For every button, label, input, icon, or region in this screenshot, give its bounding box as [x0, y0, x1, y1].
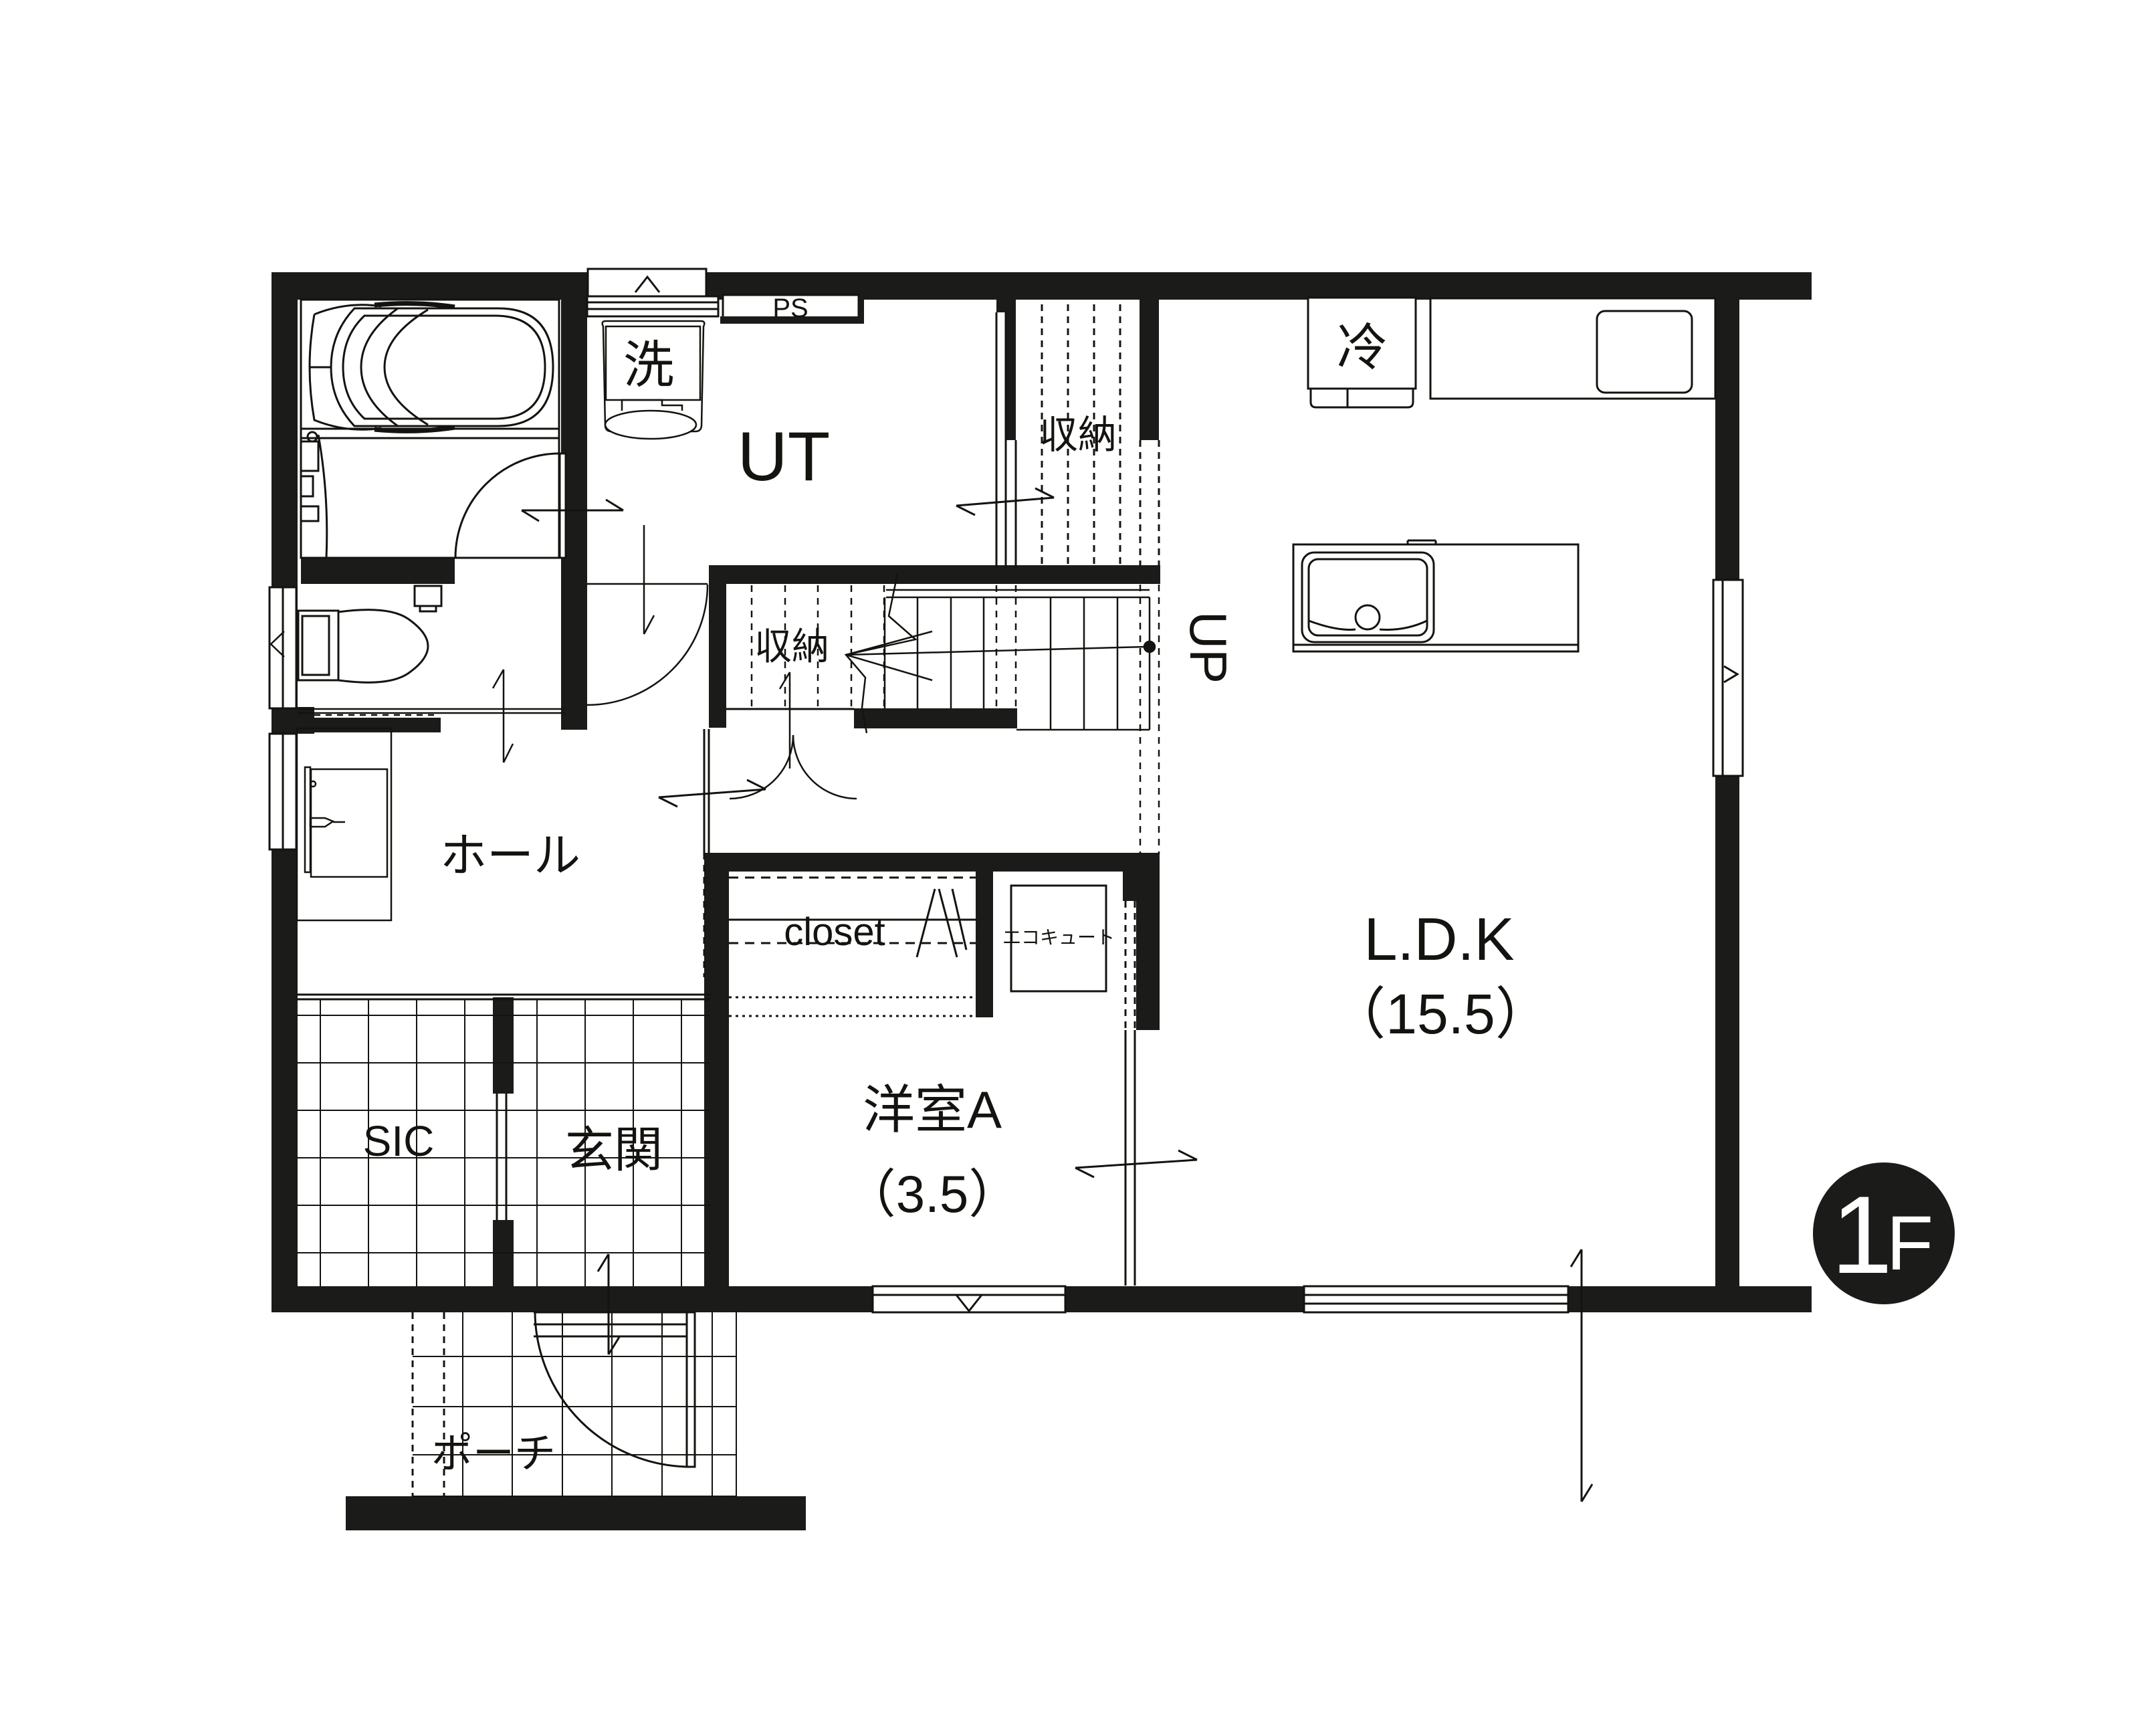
svg-text:エコキュート: エコキュート — [1002, 927, 1115, 948]
svg-text:収納: 収納 — [754, 625, 829, 668]
svg-text:1: 1 — [1831, 1173, 1893, 1296]
svg-text:洗: 洗 — [623, 337, 674, 394]
svg-text:UT: UT — [738, 418, 831, 496]
svg-text:収納: 収納 — [1039, 413, 1117, 457]
svg-text:F: F — [1886, 1201, 1933, 1286]
svg-text:玄関: 玄関 — [565, 1123, 663, 1177]
svg-text:UP: UP — [1179, 611, 1238, 684]
svg-text:L.D.K: L.D.K — [1364, 906, 1514, 973]
svg-text:SIC: SIC — [363, 1117, 435, 1165]
svg-text:（3.5）: （3.5） — [844, 1164, 1020, 1223]
svg-text:洋室A: 洋室A — [863, 1080, 1002, 1139]
svg-text:（15.5）: （15.5） — [1329, 983, 1551, 1045]
svg-text:冷: 冷 — [1337, 320, 1388, 377]
svg-text:ホール: ホール — [440, 829, 580, 882]
svg-text:ポーチ: ポーチ — [431, 1431, 556, 1477]
svg-text:closet: closet — [784, 910, 885, 954]
svg-text:PS: PS — [772, 294, 808, 323]
